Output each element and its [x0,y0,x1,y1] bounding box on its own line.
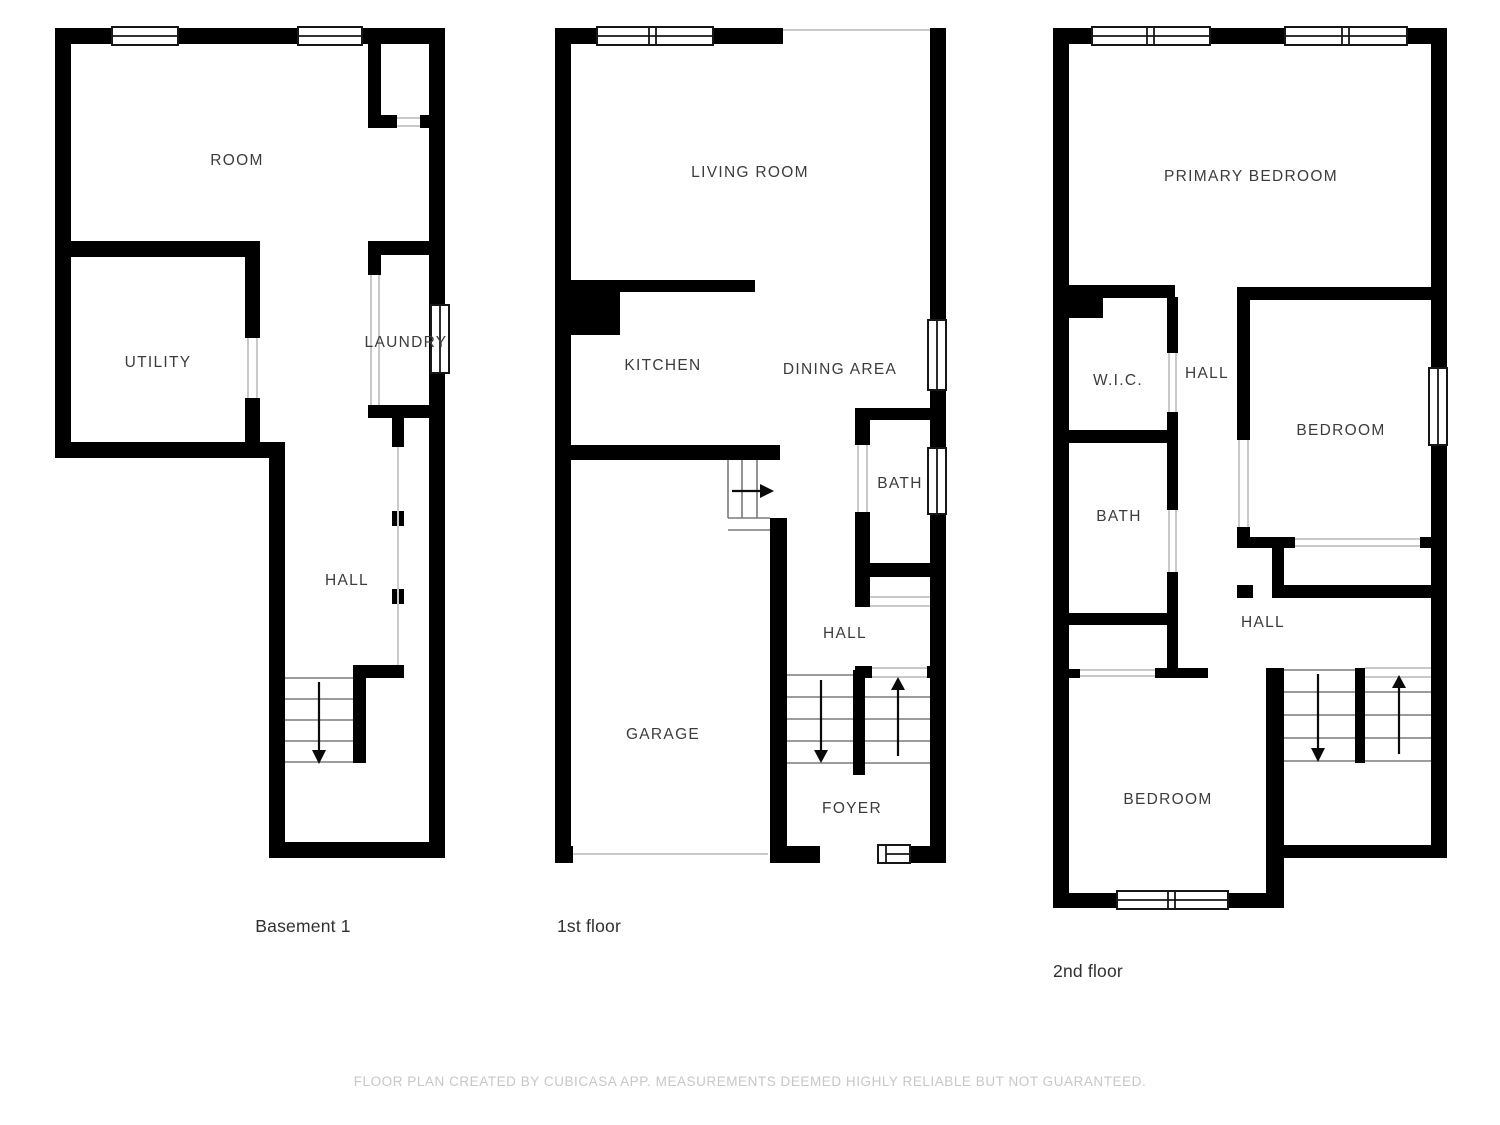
wall-segment [1167,297,1178,353]
wall-segment [353,665,366,763]
wall-segment [770,846,820,863]
stairs-second-floor [1284,668,1431,763]
wall-segment [770,518,787,846]
room-label-laundry: LAUNDRY [365,334,448,351]
wall-segment [1237,287,1447,300]
wall-segment [855,512,870,607]
wall-segment [55,442,285,458]
wall-segment [1167,412,1178,510]
wall-segment [1053,28,1069,907]
floor-label-first: 1st floor [557,916,621,936]
wall-segment [1420,537,1447,548]
room-label-primary-bedroom: PRIMARY BEDROOM [1164,168,1338,185]
wall-segment [269,442,285,858]
room-label-wic: W.I.C. [1093,372,1143,389]
wall-segment [555,445,780,460]
footer-disclaimer: FLOOR PLAN CREATED BY CUBICASA APP. MEAS… [0,1074,1500,1089]
room-label-kitchen: KITCHEN [624,357,701,374]
wall-segment [930,28,946,863]
stairs-kitchen [728,460,774,530]
wall-segment [1155,668,1208,678]
wall-segment [429,28,445,858]
wall-segment [855,563,937,577]
wall-segment [555,280,755,292]
wall-segment [1053,285,1175,298]
room-label-living-room: LIVING ROOM [691,164,809,181]
wall-segment [1237,585,1253,598]
room-label-bedroom-lower: BEDROOM [1123,791,1212,808]
stairs-basement [285,678,353,764]
wall-segment [555,28,571,846]
wall-segment [555,846,573,863]
wall-segment [908,846,946,863]
wall-segment [1266,845,1447,858]
room-label-hall-upper: HALL [1185,365,1229,382]
wall-segment [392,418,404,447]
wall-segment [1266,668,1284,907]
wall-segment [269,842,445,858]
floor-label-second: 2nd floor [1053,961,1123,981]
wall-segment [368,241,381,275]
wall-segment [927,666,946,678]
wall-segment [853,670,865,775]
wall-segment [1237,537,1295,548]
room-label-room: ROOM [210,152,263,169]
arrowhead-down-icon [814,750,828,763]
room-label-hall: HALL [823,625,867,642]
wall-segment [420,115,445,128]
wall-segment [368,115,397,128]
room-label-dining-area: DINING AREA [783,361,897,378]
wall-segment [245,398,260,444]
arrowhead-right-icon [760,484,774,498]
floorplan-second-floor: PRIMARY BEDROOM W.I.C. HALL BEDROOM BATH… [1053,27,1447,981]
stair-divider-wall [1355,668,1365,763]
wall-segment [1053,430,1177,443]
room-label-bedroom-right: BEDROOM [1296,422,1385,439]
room-label-bath: BATH [877,475,922,492]
arrowhead-down-icon [1311,748,1325,762]
room-label-hall-lower: HALL [1241,614,1285,631]
wall-segment [1069,669,1080,678]
arrowhead-up-icon [891,677,905,690]
wall-segment [855,408,937,420]
wall-segment [55,241,260,257]
room-label-bath: BATH [1096,508,1141,525]
wall-segment [1053,613,1177,625]
room-label-garage: GARAGE [626,726,700,743]
wall-segment [245,241,260,338]
wall-segment [1283,585,1447,598]
room-label-utility: UTILITY [125,354,192,371]
floorplan-first-floor: LIVING ROOM KITCHEN DINING AREA BATH HAL… [555,27,946,936]
wall-segment [1272,545,1284,598]
floor-label-basement: Basement 1 [255,916,350,936]
floorplan-drawing: ROOM UTILITY LAUNDRY HALL Basement 1 [0,0,1500,1125]
wall-segment [1237,287,1250,440]
floorplan-canvas: ROOM UTILITY LAUNDRY HALL Basement 1 [0,0,1500,1125]
room-label-foyer: FOYER [822,800,882,817]
wall-segment [368,405,445,418]
floorplan-basement: ROOM UTILITY LAUNDRY HALL Basement 1 [55,27,449,936]
wall-segment [855,595,870,607]
room-label-hall: HALL [325,572,369,589]
